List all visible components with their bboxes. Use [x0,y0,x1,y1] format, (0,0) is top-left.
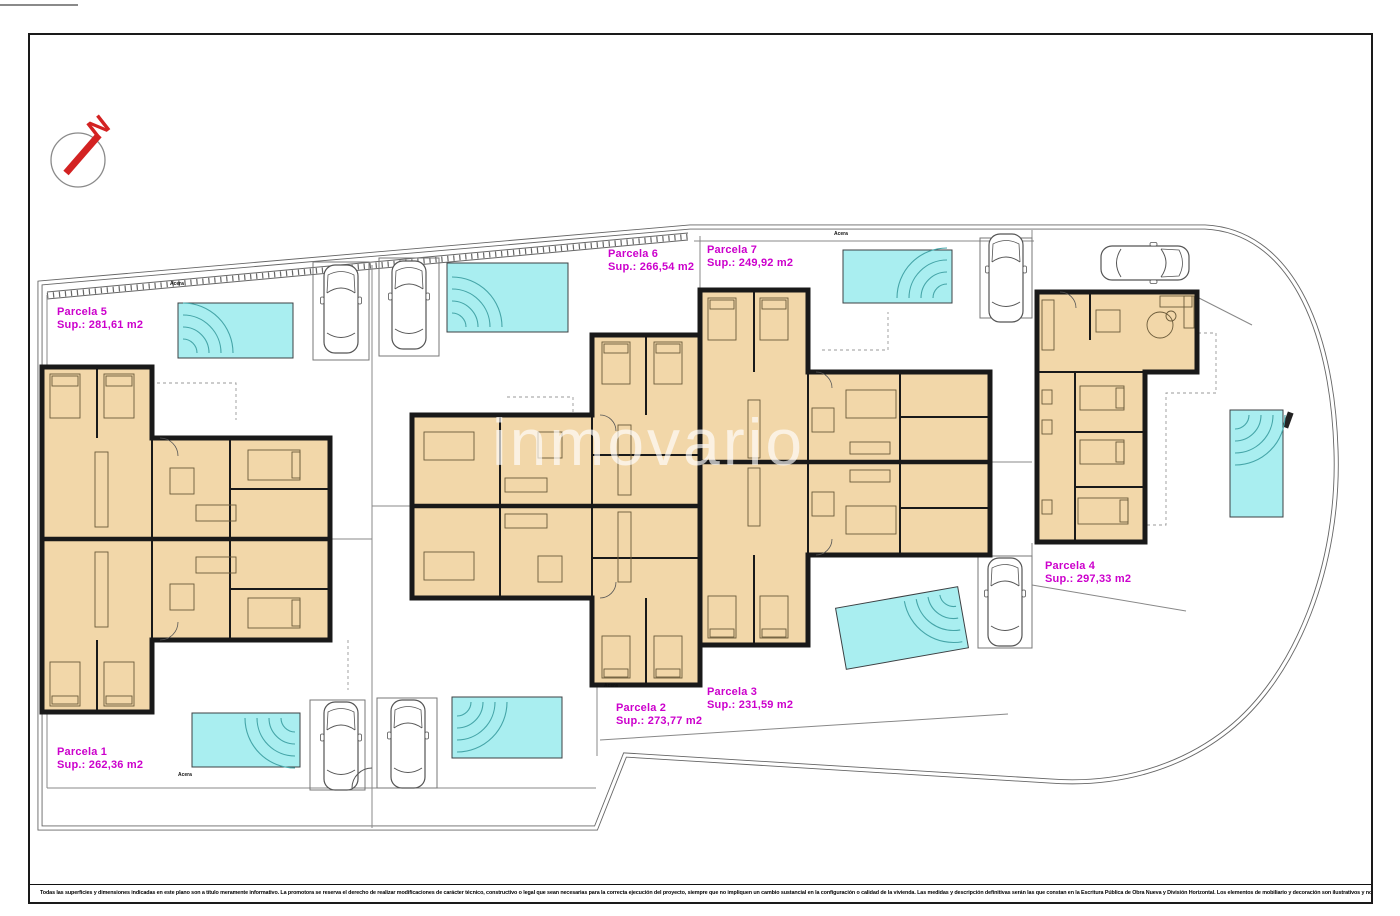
parcel-name: Parcela 3 [707,686,793,699]
car-icon [389,261,430,349]
car-icon [321,265,362,353]
parcel-label-3: Parcela 3 Sup.: 231,59 m2 [707,686,793,711]
acera-label: Acera [178,772,192,778]
parcel-area: Sup.: 262,36 m2 [57,759,143,772]
parcel-name: Parcela 2 [616,702,702,715]
site-plan-drawing: N [0,0,1400,916]
parcel-label-5: Parcela 5 Sup.: 281,61 m2 [57,306,143,331]
boundary-fence-hatched [47,233,688,299]
pool-parcela-3 [836,587,969,670]
disclaimer-text: Todas las superficies y dimensiones indi… [30,884,1371,903]
parcel-area: Sup.: 266,54 m2 [608,261,694,274]
pool-parcela-4 [1230,410,1285,517]
acera-label: Acera [604,683,618,689]
pool-parcela-1 [192,713,300,768]
parcel-area: Sup.: 231,59 m2 [707,699,793,712]
parcel-area: Sup.: 281,61 m2 [57,319,143,332]
parcel-label-1: Parcela 1 Sup.: 262,36 m2 [57,746,143,771]
site-plan-document: N inmovario Parcela 5 Sup.: 281,61 m2 Pa… [0,0,1400,916]
pool-parcela-5 [178,303,293,358]
parcel-label-6: Parcela 6 Sup.: 266,54 m2 [608,248,694,273]
pool-parcela-7 [843,248,952,303]
parcel-name: Parcela 7 [707,244,793,257]
house-floorplan-parcelas-6-2 [412,335,700,685]
parcel-name: Parcela 6 [608,248,694,261]
parcel-name: Parcela 4 [1045,560,1131,573]
parcel-label-4: Parcela 4 Sup.: 297,33 m2 [1045,560,1131,585]
north-label: N [82,109,116,145]
parcel-name: Parcela 5 [57,306,143,319]
pool-parcela-2 [452,697,562,758]
car-icon [1101,243,1189,284]
parcel-area: Sup.: 273,77 m2 [616,715,702,728]
north-arrow: N [51,109,115,187]
car-icon [388,700,429,788]
acera-label: Acera [170,281,184,287]
parcel-label-2: Parcela 2 Sup.: 273,77 m2 [616,702,702,727]
acera-label: Acera [834,231,848,237]
parcel-area: Sup.: 249,92 m2 [707,257,793,270]
pool-parcela-6 [447,263,568,332]
parcel-area: Sup.: 297,33 m2 [1045,573,1131,586]
house-floorplan-parcelas-5-1 [42,367,330,712]
house-floorplan-parcela-4 [1037,292,1197,542]
parcel-label-7: Parcela 7 Sup.: 249,92 m2 [707,244,793,269]
parcel-name: Parcela 1 [57,746,143,759]
car-icon [986,234,1027,322]
car-icon [985,558,1026,646]
